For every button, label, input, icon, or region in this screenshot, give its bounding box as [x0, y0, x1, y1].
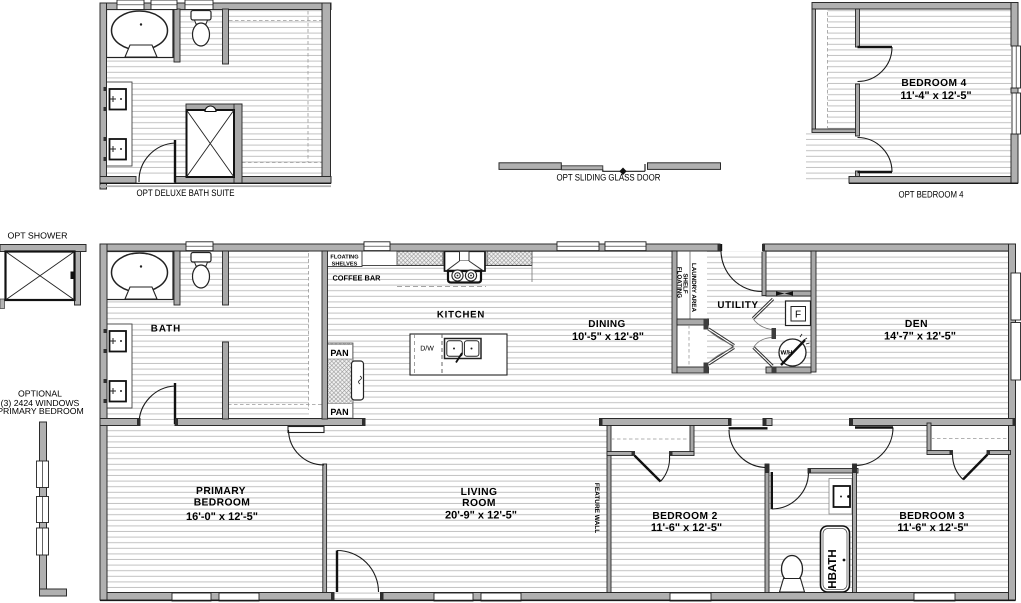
- svg-text:FEATURE WALL: FEATURE WALL: [593, 483, 600, 533]
- svg-text:PAN: PAN: [330, 407, 348, 417]
- svg-text:COFFEE BAR: COFFEE BAR: [332, 274, 381, 283]
- svg-text:20'-9" x 12'-5": 20'-9" x 12'-5": [445, 510, 517, 522]
- svg-text:LAUNDRY AREA: LAUNDRY AREA: [690, 263, 697, 312]
- svg-text:PRIMARY: PRIMARY: [196, 486, 246, 497]
- svg-text:11'-6" x 12'-5": 11'-6" x 12'-5": [897, 522, 968, 534]
- svg-text:F: F: [795, 310, 801, 321]
- svg-text:OPT BEDROOM 4: OPT BEDROOM 4: [899, 188, 964, 199]
- svg-text:10'-5" x 12'-8": 10'-5" x 12'-8": [572, 331, 644, 343]
- svg-text:SHELVES: SHELVES: [332, 262, 358, 268]
- svg-text:KITCHEN: KITCHEN: [437, 310, 485, 321]
- svg-text:W/H: W/H: [780, 350, 793, 357]
- svg-text:BATH: BATH: [151, 324, 181, 335]
- svg-text:DINING: DINING: [588, 319, 625, 330]
- svg-text:11'-6" x 12'-5": 11'-6" x 12'-5": [651, 522, 722, 534]
- svg-text:LIVING: LIVING: [461, 487, 498, 498]
- svg-text:14'-7" x 12'-5": 14'-7" x 12'-5": [884, 331, 956, 343]
- svg-text:SHELF: SHELF: [682, 273, 689, 294]
- svg-text:DEN: DEN: [905, 319, 928, 330]
- svg-text:HBATH: HBATH: [827, 549, 839, 588]
- svg-text:D/W: D/W: [420, 345, 434, 353]
- svg-text:BEDROOM 3: BEDROOM 3: [899, 511, 964, 522]
- svg-text:BEDROOM 4: BEDROOM 4: [901, 78, 966, 89]
- svg-text:OPT SHOWER: OPT SHOWER: [8, 230, 68, 240]
- svg-text:FLOATING: FLOATING: [676, 267, 683, 298]
- svg-text:PAN: PAN: [330, 348, 348, 358]
- svg-text:OPT SLIDING GLASS DOOR: OPT SLIDING GLASS DOOR: [557, 172, 661, 183]
- svg-text:FLOATING: FLOATING: [330, 255, 358, 261]
- svg-text:BEDROOM: BEDROOM: [194, 498, 251, 509]
- svg-text:ROOM: ROOM: [462, 498, 496, 509]
- svg-text:PRIMARY BEDROOM: PRIMARY BEDROOM: [0, 406, 84, 416]
- svg-text:16'-0" x 12'-5": 16'-0" x 12'-5": [186, 511, 258, 523]
- svg-text:BEDROOM 2: BEDROOM 2: [652, 511, 717, 522]
- svg-text:OPTIONAL: OPTIONAL: [18, 389, 62, 399]
- svg-text:UTILITY: UTILITY: [717, 300, 758, 311]
- svg-text:OPT DELUXE BATH SUITE: OPT DELUXE BATH SUITE: [137, 187, 235, 198]
- svg-text:11'-4" x 12'-5": 11'-4" x 12'-5": [900, 90, 971, 102]
